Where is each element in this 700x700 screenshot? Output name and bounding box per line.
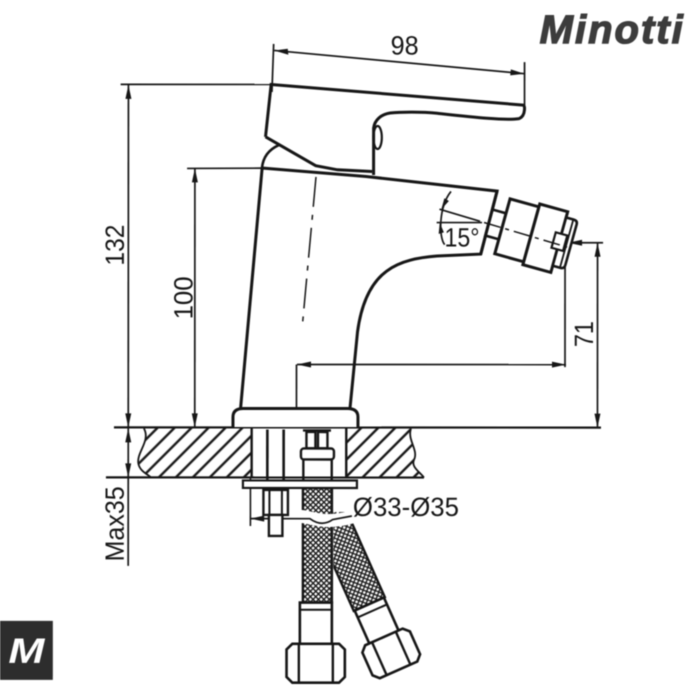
svg-text:Max35: Max35 xyxy=(100,486,130,561)
svg-text:M: M xyxy=(8,631,46,671)
svg-text:132: 132 xyxy=(100,225,130,266)
svg-text:98: 98 xyxy=(391,31,419,61)
svg-text:71: 71 xyxy=(569,321,599,347)
svg-text:100: 100 xyxy=(169,276,199,319)
svg-text:Minotti: Minotti xyxy=(540,8,685,52)
svg-text:15°: 15° xyxy=(445,223,480,253)
svg-text:Ø33-Ø35: Ø33-Ø35 xyxy=(353,492,459,522)
